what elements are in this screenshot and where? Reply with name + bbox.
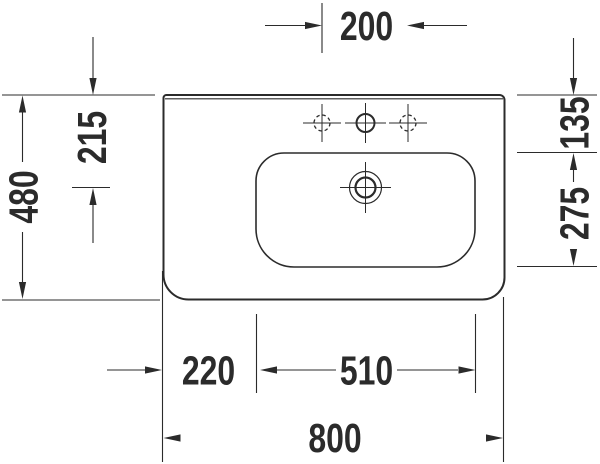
- tap-hole-center-crosshair: [345, 103, 386, 143]
- dim-tap-spacing: 200: [265, 3, 467, 53]
- dim-label-220: 220: [182, 348, 235, 394]
- drain-crosshair: [340, 162, 391, 213]
- tap-hole-left-crosshair: [303, 104, 341, 142]
- dim-rim-to-drain: 215: [69, 37, 115, 243]
- dim-label-275: 275: [552, 187, 598, 240]
- tap-hole-right-crosshair: [389, 104, 427, 142]
- dim-bowl-width: 510: [257, 314, 476, 393]
- technical-drawing: 200 480 215 135 275 220 510 800: [0, 0, 600, 464]
- basin-outline: [164, 95, 505, 300]
- dim-label-510: 510: [340, 348, 393, 394]
- dim-rim-to-bowl: 135: [517, 38, 597, 153]
- dim-label-200: 200: [340, 3, 393, 49]
- dim-bowl-depth: 275: [517, 153, 597, 267]
- tap-hole-right: [389, 104, 427, 142]
- washbasin-top-view: 200 480 215 135 275 220 510 800: [0, 0, 600, 464]
- drain: [340, 162, 391, 213]
- dim-label-215: 215: [69, 111, 115, 164]
- dim-left-offset: 220: [107, 348, 235, 394]
- dim-label-480: 480: [1, 170, 47, 223]
- tap-hole-left: [303, 104, 341, 142]
- dim-label-135: 135: [552, 96, 598, 149]
- dim-label-800: 800: [308, 415, 361, 461]
- tap-hole-center: [345, 103, 386, 143]
